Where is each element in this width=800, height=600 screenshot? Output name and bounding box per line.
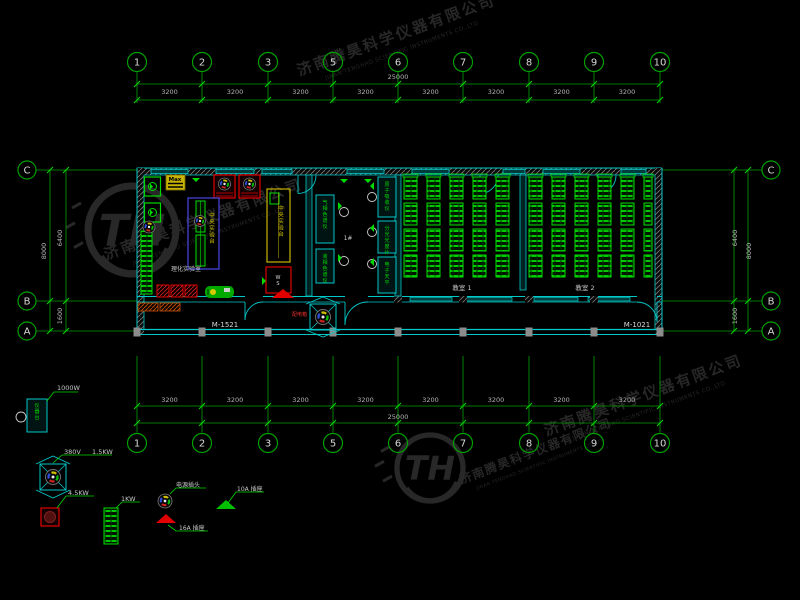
bench-column (449, 174, 464, 277)
logo-arc (248, 180, 252, 181)
grid-bubble-bottom-label: 10 (654, 439, 667, 450)
bay-dim-label: 3200 (357, 396, 374, 404)
bench-column (643, 174, 653, 277)
wall-cone (370, 182, 374, 190)
left-span-dim-6400: 6400 (56, 230, 64, 247)
bay-dim-label: 3200 (619, 88, 636, 96)
logo-center (52, 476, 55, 479)
side-bench-label: 中央实验台 (278, 204, 284, 238)
bench-segment (529, 229, 542, 251)
watermark-logo-letters: TH (405, 449, 455, 488)
column (134, 328, 141, 337)
bay-dim-label: 3200 (553, 396, 570, 404)
logo-arc (199, 218, 202, 219)
wall-pier (590, 296, 598, 303)
bench-logo (195, 216, 206, 227)
fan-logo (219, 178, 231, 190)
bench-logo (143, 221, 155, 233)
bench-segment (496, 255, 509, 277)
bench-segment (473, 229, 486, 251)
grid-bubble-left-label: A (24, 327, 31, 338)
window (412, 170, 449, 174)
power-box-wing (306, 297, 340, 304)
stool (368, 193, 377, 202)
grid-bubble-right-label: A (768, 327, 775, 338)
bench-column (620, 174, 635, 277)
watermark-logo-dash (383, 476, 392, 481)
bench-segment (598, 203, 611, 225)
grid-bubble-top-label: 1 (134, 58, 140, 69)
column (657, 328, 664, 337)
grid-bubble-bottom-label: 3 (265, 439, 271, 450)
instrument-table-label: 原子吸收仪 (384, 182, 389, 212)
logo-arc (252, 183, 253, 187)
grid-bubble-left-label: B (24, 297, 31, 308)
instrument-table-label: 液相色谱仪 (322, 253, 327, 284)
bench-segment (598, 255, 611, 277)
bench-segment (427, 229, 440, 251)
watermark-logo-letters: TH (99, 205, 166, 256)
column (265, 328, 272, 337)
bench-segment (473, 203, 486, 225)
bench-column (426, 174, 441, 277)
bench-segment (473, 255, 486, 277)
bench-segment (621, 203, 634, 225)
interior-wall (306, 175, 312, 296)
grid-bubble-bottom-label: 5 (330, 439, 336, 450)
grid-bubble-top-label: 3 (265, 58, 271, 69)
window (503, 170, 525, 174)
bench-segment (450, 255, 463, 277)
bench-segment (552, 203, 565, 225)
logo-arc (221, 182, 222, 186)
watermark-logo: TH (66, 186, 176, 274)
grid-bubble-top-label: 9 (591, 58, 597, 69)
logo-arc (223, 180, 227, 181)
legend-leader (228, 492, 264, 503)
power-box-logo (316, 310, 331, 325)
grid-bubble-bottom-label: 8 (526, 439, 532, 450)
grid-bubble-top-label: 5 (330, 58, 336, 69)
legend-1000w-label: 1000W (57, 384, 81, 392)
bay-dim-label: 3200 (161, 396, 178, 404)
bench-segment (529, 203, 542, 225)
window (410, 298, 452, 302)
wall-cone (364, 179, 372, 183)
column (591, 328, 598, 337)
logo-arc (320, 320, 325, 321)
watermark-logo-dash (66, 223, 75, 228)
instrument-table-label: 分光光度计 (384, 225, 389, 256)
logo-center (148, 226, 150, 228)
logo-arc (222, 187, 226, 188)
logo-arc (319, 314, 320, 319)
logo-arc (322, 313, 327, 314)
bay-dim-label: 3200 (227, 88, 244, 96)
watermark-logo-dash (375, 461, 384, 466)
bench-segment (621, 255, 634, 277)
logo-arc (145, 225, 146, 229)
left-span-dim-1600: 1600 (56, 308, 64, 325)
door-tag-m1521: M-1521 (212, 321, 238, 329)
oven-box (171, 285, 183, 297)
wall-cone (370, 224, 374, 232)
top-total-dim: 25000 (388, 73, 409, 81)
logo-arc (247, 187, 251, 188)
bench-segment (473, 177, 486, 199)
door-swing-arc (245, 302, 263, 320)
column (395, 328, 402, 337)
right-span-dim-1600: 1600 (731, 308, 739, 325)
grid-bubble-top-label: 2 (199, 58, 205, 69)
column (526, 328, 533, 337)
bay-dim-label: 3200 (422, 396, 439, 404)
legend-1kw-label: 1KW (121, 495, 136, 503)
grid-bubble-bottom-label: 9 (591, 439, 597, 450)
scrubber-knob (210, 289, 216, 295)
bay-dim-label: 3200 (292, 88, 309, 96)
legend: 仪器台 (16, 392, 264, 544)
logo-arc (162, 504, 166, 505)
legend-leader (53, 455, 112, 463)
room-label-lab: 理化实验室 (171, 265, 201, 273)
logo-center (248, 183, 250, 185)
wall-pier (525, 296, 533, 303)
grid-bubble-bottom-label: 7 (460, 439, 466, 450)
bench-segment (404, 255, 417, 277)
room-label-instrument: 1# (344, 235, 353, 242)
bench-segment (621, 229, 634, 251)
logo-arc (168, 500, 169, 504)
bay-dim-label: 3200 (488, 88, 505, 96)
legend-45kw-label: 4.5KW (68, 489, 89, 497)
window (151, 170, 188, 174)
logo-arc (56, 476, 57, 481)
legend-dist-logo (46, 470, 61, 485)
legend-cabinet (104, 508, 118, 544)
window (347, 170, 384, 174)
grid-bubble-top-label: 8 (526, 58, 532, 69)
scrubber-vent (224, 288, 230, 292)
bench-segment (575, 203, 588, 225)
bench-column (574, 174, 589, 277)
bench-column (551, 174, 566, 277)
logo-arc (202, 220, 203, 223)
logo-arc (152, 226, 153, 230)
corridor-cabinet (160, 303, 180, 311)
bench-segment (450, 229, 463, 251)
grid-bubble-top-label: 6 (395, 58, 401, 69)
floor-plan-drawing: 济南腾昊科学仪器有限公司 JINAN TENGHAO SCIENTIFIC IN… (0, 0, 800, 600)
wall-bench-left (141, 231, 152, 294)
wall-cone (340, 179, 348, 183)
bench-segment (450, 177, 463, 199)
oven-box (185, 285, 197, 297)
classroom-benches (403, 174, 653, 277)
logo-arc (49, 474, 50, 479)
watermark-cn: 济南腾昊科学仪器有限公司 (542, 351, 746, 440)
bench-segment (598, 177, 611, 199)
bay-dim-label: 3200 (357, 88, 374, 96)
bench-column (472, 174, 487, 277)
watermark-logo-dash (74, 243, 83, 248)
bench-segment (575, 229, 588, 251)
bench-segment (427, 203, 440, 225)
bench-segment (598, 229, 611, 251)
right-total-dim: 8000 (745, 243, 753, 260)
door-tag-m1021: M-1021 (624, 321, 650, 329)
window (621, 170, 646, 174)
window (534, 298, 578, 302)
bench-segment (427, 177, 440, 199)
legend-stool (16, 412, 26, 422)
bench-segment (529, 177, 542, 199)
bench-column (403, 174, 418, 277)
bay-dim-label: 3200 (553, 88, 570, 96)
door-swing-arc (345, 302, 368, 325)
logo-center (322, 316, 325, 319)
bench-segment (644, 177, 652, 199)
bench-segment (552, 177, 565, 199)
column (199, 328, 206, 337)
logo-arc (52, 473, 57, 474)
oven-box (157, 285, 169, 297)
bench-segment (621, 177, 634, 199)
logo-arc (198, 223, 201, 224)
central-bench-label: 中央实验台 (209, 211, 215, 245)
wall-cone (192, 178, 200, 182)
exterior-wall-right (655, 168, 662, 335)
bench-segment (404, 203, 417, 225)
wall-pier (394, 296, 402, 303)
bench-segment (575, 177, 588, 199)
logo-center (164, 500, 167, 503)
window (460, 298, 512, 302)
legend-socket10-symbol (216, 500, 236, 509)
logo-arc (227, 183, 228, 187)
bay-dim-label: 3200 (161, 88, 178, 96)
instrument-table-label: 电子天平 (384, 261, 389, 286)
bench-segment (450, 203, 463, 225)
bench-segment (496, 203, 509, 225)
grid-bubble-top-label: 10 (654, 58, 667, 69)
ws-cone (262, 277, 266, 285)
grid-bubble-bottom-label: 2 (199, 439, 205, 450)
max-box-label: Max (169, 177, 182, 183)
bench-segment (644, 229, 652, 251)
ws-label: WS (276, 275, 281, 287)
legend-oven-core (45, 512, 56, 523)
stool (340, 208, 349, 217)
bay-dim-label: 3200 (619, 396, 636, 404)
watermark-logo-dash (381, 447, 390, 452)
bench-segment (404, 177, 417, 199)
logo-arc (246, 182, 247, 186)
room-label-2: 教室 2 (575, 283, 594, 292)
bench-segment (644, 203, 652, 225)
legend-socket16-symbol (156, 514, 176, 523)
door-swing-arc (637, 302, 657, 322)
window (543, 170, 580, 174)
logo-arc (164, 497, 168, 498)
logo-arc (326, 316, 327, 321)
window (262, 170, 292, 174)
bay-dim-label: 3200 (422, 88, 439, 96)
room-label-1: 教室 1 (452, 283, 471, 292)
left-total-dim: 8000 (40, 243, 48, 260)
logo-arc (50, 480, 55, 481)
logo-arc (197, 219, 198, 222)
logo-center (223, 183, 225, 185)
legend-15kw-label: 1.5KW (92, 448, 113, 456)
bench-segment (496, 229, 509, 251)
legend-plug-label: 电源插头 (176, 481, 200, 489)
bottom-total-dim: 25000 (388, 413, 409, 421)
legend-socket16-label: 16A 插座 (179, 524, 205, 532)
logo-arc (148, 223, 152, 224)
right-span-dim-6400: 6400 (731, 230, 739, 247)
bay-dim-label: 3200 (292, 396, 309, 404)
grid-bubble-top-label: 7 (460, 58, 466, 69)
grid-bubble-right-label: B (768, 297, 775, 308)
bench-column (528, 174, 543, 277)
instrument-table-label: 气相色谱仪 (322, 199, 327, 230)
bench-column (597, 174, 612, 277)
bench-segment (644, 255, 652, 277)
legend-socket10-label: 10A 插座 (237, 485, 263, 493)
corridor-cabinet (138, 303, 158, 311)
watermark-bottom-center: 济南腾昊科学仪器有限公司 JINAN TENGHAO SCIENTIFIC IN… (457, 415, 617, 496)
bench-segment (552, 229, 565, 251)
instrument-room-contents: 气相色谱仪液相色谱仪原子吸收仪分光光度计电子天平 (306, 177, 396, 337)
bench-segment (552, 255, 565, 277)
bench-column (495, 174, 510, 277)
grid-bubble-left-label: C (24, 166, 31, 177)
logo-center (199, 220, 201, 222)
cad-drawing-canvas: 济南腾昊科学仪器有限公司 JINAN TENGHAO SCIENTIFIC IN… (0, 0, 800, 600)
legend-leader (57, 496, 94, 508)
wall-cone (338, 254, 342, 262)
fan-logo (244, 178, 256, 190)
interior-wall (520, 175, 526, 290)
logo-arc (147, 230, 151, 231)
power-box-label: 配电箱 (292, 311, 307, 318)
grid-bubble-bottom-label: 6 (395, 439, 401, 450)
grid-bubble-bottom-label: 1 (134, 439, 140, 450)
bench-segment (427, 255, 440, 277)
bench-segment (496, 177, 509, 199)
legend-instrument-table-text: 仪器台 (34, 403, 39, 421)
legend-leader (47, 392, 78, 401)
logo-arc (161, 498, 162, 502)
bench-segment (404, 229, 417, 251)
column (460, 328, 467, 337)
bench-segment (575, 255, 588, 277)
legend-380v-label: 380V (64, 448, 81, 456)
bay-dim-label: 3200 (488, 396, 505, 404)
watermark-logo-dash (72, 203, 81, 208)
bay-dim-label: 3200 (227, 396, 244, 404)
legend-plug-symbol (158, 494, 172, 508)
window (216, 170, 254, 174)
grid-bubble-right-label: C (768, 166, 775, 177)
legend-dist-wing (36, 490, 70, 498)
bench-segment (529, 255, 542, 277)
wall-pier (459, 296, 467, 303)
